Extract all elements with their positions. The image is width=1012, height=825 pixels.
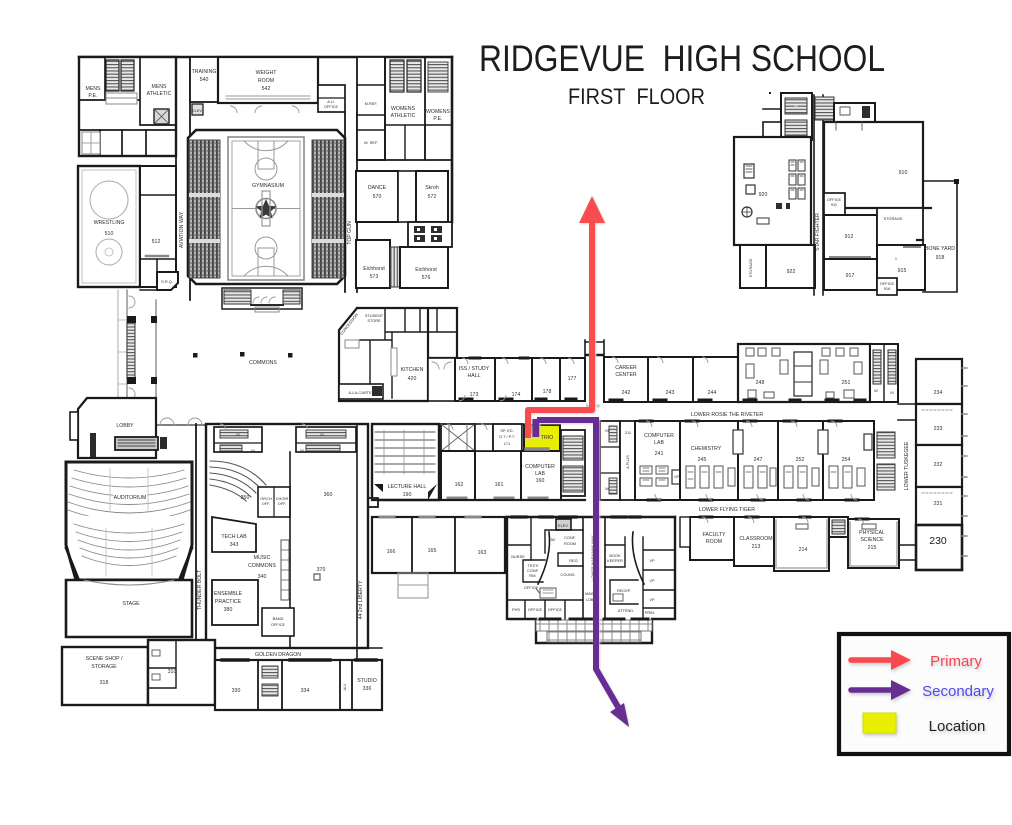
svg-text:248: 248 [756, 380, 765, 386]
svg-text:166: 166 [387, 549, 396, 555]
svg-text:GYMNASIUM: GYMNASIUM [252, 183, 284, 189]
svg-text:OFFICE: OFFICE [528, 607, 543, 612]
svg-text:MENS: MENS [152, 84, 168, 90]
svg-text:M: M [794, 103, 797, 108]
svg-text:162: 162 [455, 482, 464, 488]
svg-text:215: 215 [868, 545, 877, 551]
svg-text:ATTEND.: ATTEND. [618, 608, 634, 613]
svg-text:KEEPER: KEEPER [607, 558, 623, 563]
svg-text:M: M [605, 428, 608, 433]
svg-text:251: 251 [842, 380, 851, 386]
svg-text:OFFICE: OFFICE [324, 104, 339, 109]
svg-text:VP: VP [649, 558, 655, 563]
svg-text:LOWER ROSIE THE RIVETER: LOWER ROSIE THE RIVETER [691, 412, 764, 418]
svg-text:ROOM: ROOM [706, 539, 722, 545]
svg-text:KITCHEN: KITCHEN [401, 367, 424, 373]
svg-text:LECTURE HALL: LECTURE HALL [388, 484, 427, 490]
svg-text:245: 245 [698, 457, 707, 463]
svg-text:163: 163 [478, 550, 487, 556]
svg-text:COUNS.: COUNS. [560, 572, 575, 577]
svg-text:243: 243 [666, 390, 675, 396]
svg-text:A PLUS: A PLUS [625, 455, 630, 469]
svg-text:SCIENCE: SCIENCE [860, 537, 884, 543]
svg-text:420: 420 [408, 376, 417, 382]
svg-text:LOWER TUSKEGEE: LOWER TUSKEGEE [904, 441, 910, 490]
svg-text:LOBBY: LOBBY [116, 423, 134, 429]
svg-text:570: 570 [373, 194, 382, 200]
svg-text:TOP GUN: TOP GUN [347, 221, 353, 245]
svg-text:M: M [890, 390, 893, 395]
svg-text:912: 912 [845, 234, 854, 240]
svg-text:540: 540 [200, 77, 209, 83]
svg-text:214: 214 [799, 547, 808, 553]
svg-text:SCENE SHOP /: SCENE SHOP / [86, 656, 123, 662]
svg-text:542: 542 [262, 86, 271, 92]
svg-text:917: 917 [846, 273, 855, 279]
svg-text:TRIO: TRIO [541, 435, 553, 441]
svg-text:SP. ED.: SP. ED. [500, 428, 513, 433]
svg-text:ALV: ALV [342, 683, 347, 690]
svg-text:CHEMISTRY: CHEMISTRY [691, 446, 722, 452]
svg-text:STORE: STORE [367, 318, 381, 323]
svg-text:VP: VP [649, 578, 655, 583]
svg-text:O.T / P.T.: O.T / P.T. [499, 434, 515, 439]
svg-text:910: 910 [899, 170, 908, 176]
svg-text:ATHLETIC: ATHLETIC [391, 113, 416, 119]
svg-text:STUDIO: STUDIO [357, 678, 377, 684]
svg-text:920: 920 [759, 192, 768, 198]
svg-text:ATHLETIC: ATHLETIC [147, 91, 172, 97]
svg-text:334: 334 [301, 688, 310, 694]
svg-text:PRIN.: PRIN. [645, 610, 655, 615]
svg-text:OFF.: OFF. [262, 501, 270, 506]
svg-text:44 2nd LIBERTY: 44 2nd LIBERTY [358, 580, 364, 619]
svg-text:OFFICE: OFFICE [271, 622, 286, 627]
svg-text:350: 350 [241, 495, 250, 501]
svg-text:TRAINING: TRAINING [192, 69, 217, 75]
svg-text:COMPUTER: COMPUTER [644, 433, 674, 439]
svg-text:336: 336 [363, 686, 372, 692]
svg-text:512: 512 [152, 239, 161, 245]
svg-text:911: 911 [831, 202, 837, 207]
svg-text:LAB: LAB [654, 440, 664, 446]
svg-text:234: 234 [934, 390, 943, 396]
svg-text:MUSIC: MUSIC [254, 555, 271, 561]
svg-text:CENTER: CENTER [615, 372, 637, 378]
svg-text:ELEV: ELEV [192, 108, 202, 113]
svg-text:ROOM: ROOM [258, 78, 274, 84]
svg-text:PHYSICAL: PHYSICAL [859, 530, 885, 536]
svg-text:370: 370 [317, 567, 326, 573]
svg-text:BONE YARD: BONE YARD [925, 246, 955, 252]
svg-text:COMPUTER: COMPUTER [525, 464, 555, 470]
svg-text:AUDITORIUM: AUDITORIUM [114, 495, 147, 501]
svg-text:STAGE: STAGE [122, 601, 140, 607]
svg-text:576: 576 [422, 275, 431, 281]
svg-text:CONF.: CONF. [564, 535, 576, 540]
svg-text:COMMONS: COMMONS [248, 563, 276, 569]
svg-text:W: W [874, 388, 878, 393]
svg-text:W. REF.: W. REF. [364, 140, 378, 145]
svg-text:REG.: REG. [569, 558, 579, 563]
svg-text:173: 173 [470, 392, 479, 398]
svg-text:174: 174 [512, 392, 521, 398]
svg-text:W: W [251, 448, 255, 453]
svg-text:510: 510 [105, 231, 114, 237]
svg-text:310: 310 [168, 669, 177, 675]
svg-text:RIDGEVUE HIGH SCHOOL: RIDGEVUE HIGH SCHOOL [479, 38, 885, 79]
svg-text:STORAGE: STORAGE [748, 258, 753, 277]
svg-text:FACULTY: FACULTY [703, 532, 727, 538]
svg-text:M: M [236, 432, 239, 437]
svg-text:ISS / STUDY: ISS / STUDY [459, 366, 490, 372]
svg-text:340: 340 [258, 574, 267, 580]
svg-text:CAREER: CAREER [615, 365, 637, 371]
svg-text:P.E.: P.E. [88, 93, 97, 99]
svg-text:RM.: RM. [529, 573, 536, 578]
svg-text:OFFICE: OFFICE [548, 607, 563, 612]
svg-text:230: 230 [929, 535, 947, 547]
svg-text:573: 573 [370, 274, 379, 280]
svg-text:P.E.: P.E. [433, 116, 442, 122]
svg-text:STORAGE: STORAGE [884, 216, 903, 221]
svg-text:M: M [320, 432, 323, 437]
svg-text:HALL: HALL [468, 373, 481, 379]
svg-text:VP: VP [649, 597, 655, 602]
svg-text:WOMENS: WOMENS [391, 106, 415, 112]
svg-text:916: 916 [884, 286, 891, 291]
svg-text:244: 244 [708, 390, 717, 396]
svg-text:178: 178 [543, 389, 552, 395]
svg-text:171: 171 [504, 441, 511, 446]
svg-text:Eichhorst: Eichhorst [363, 266, 385, 272]
svg-text:918: 918 [936, 255, 945, 261]
svg-text:ELEV: ELEV [558, 523, 568, 528]
svg-text:PRACTICE: PRACTICE [215, 599, 242, 605]
svg-text:213: 213 [752, 544, 761, 550]
svg-text:WEIGHT: WEIGHT [256, 70, 278, 76]
svg-text:STORAGE: STORAGE [91, 664, 117, 670]
svg-text:Location: Location [929, 718, 986, 735]
svg-text:247: 247 [754, 457, 763, 463]
svg-text:WOMENS: WOMENS [426, 109, 450, 115]
svg-text:343: 343 [230, 542, 239, 548]
svg-text:COMMONS: COMMONS [249, 360, 277, 366]
svg-text:330: 330 [232, 688, 241, 694]
svg-text:ENSEMBLE: ENSEMBLE [214, 591, 243, 597]
svg-text:DANCE: DANCE [368, 185, 387, 191]
svg-text:Primary: Primary [930, 653, 982, 670]
svg-text:1: 1 [895, 256, 897, 261]
svg-text:A-LA-CARTE: A-LA-CARTE [348, 390, 371, 395]
svg-text:BAND: BAND [273, 616, 284, 621]
svg-text:RECEP.: RECEP. [617, 588, 631, 593]
svg-text:360: 360 [324, 492, 333, 498]
svg-text:LAB: LAB [535, 471, 545, 477]
svg-text:LOWER FLYING TIGER: LOWER FLYING TIGER [699, 507, 755, 513]
svg-text:211: 211 [625, 430, 631, 435]
svg-text:Skroh: Skroh [425, 185, 439, 191]
svg-text:FIRST FLOOR: FIRST FLOOR [568, 84, 705, 109]
svg-text:233: 233 [934, 426, 943, 432]
svg-text:TECH LAB: TECH LAB [221, 534, 247, 540]
svg-text:231: 231 [934, 501, 943, 507]
svg-text:242: 242 [622, 390, 631, 396]
svg-text:252: 252 [796, 457, 805, 463]
svg-text:572: 572 [428, 194, 437, 200]
svg-text:S.R.Q.: S.R.Q. [161, 279, 173, 284]
svg-text:241: 241 [655, 451, 664, 457]
svg-text:318: 318 [100, 680, 109, 686]
svg-text:160: 160 [536, 478, 545, 484]
svg-text:380: 380 [224, 607, 233, 613]
svg-text:MENS: MENS [86, 86, 102, 92]
svg-text:AVIATION WAY: AVIATION WAY [179, 211, 185, 248]
svg-text:WRESTLING: WRESTLING [94, 220, 125, 226]
svg-text:W: W [300, 448, 304, 453]
svg-text:PHS: PHS [512, 607, 520, 612]
svg-text:232: 232 [934, 462, 943, 468]
svg-text:165: 165 [428, 548, 437, 554]
svg-text:Secondary: Secondary [922, 683, 994, 700]
svg-text:GOLDEN DRAGON: GOLDEN DRAGON [255, 652, 301, 658]
svg-text:922: 922 [787, 269, 796, 275]
svg-text:161: 161 [495, 482, 504, 488]
svg-text:254: 254 [842, 457, 851, 463]
svg-text:177: 177 [568, 376, 577, 382]
svg-text:CLASSROOM: CLASSROOM [739, 536, 772, 542]
svg-text:STAR FIGHTER: STAR FIGHTER [815, 213, 821, 251]
svg-text:NURSE: NURSE [511, 554, 525, 559]
svg-text:M.REF.: M.REF. [365, 101, 378, 106]
svg-text:THUNDER BOLT: THUNDER BOLT [197, 569, 203, 610]
svg-text:Eichhorst: Eichhorst [415, 267, 437, 273]
svg-text:915: 915 [898, 268, 907, 274]
svg-text:OFF.: OFF. [278, 501, 286, 506]
svg-text:ROOM: ROOM [564, 541, 576, 546]
svg-text:190: 190 [403, 492, 412, 498]
